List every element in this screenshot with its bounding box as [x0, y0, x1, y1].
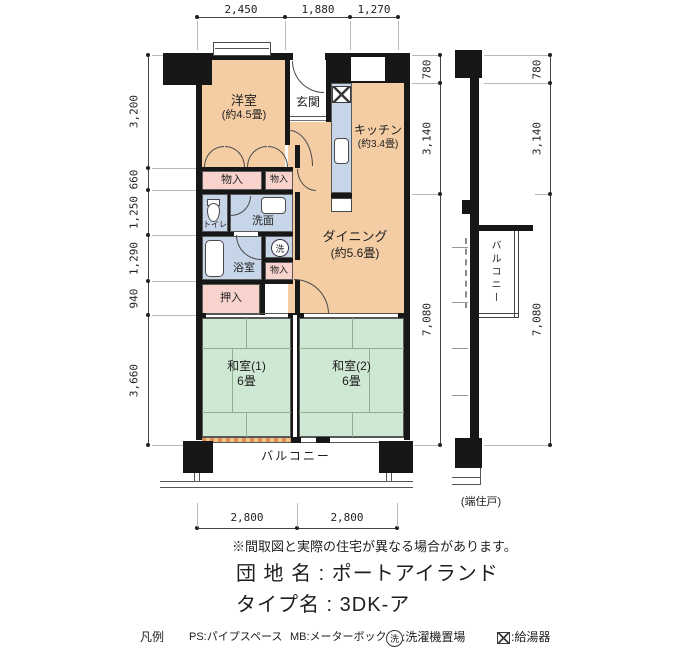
dim-left-5: 940 [128, 264, 141, 334]
dim-ext [398, 21, 399, 50]
dim-ext [484, 445, 548, 446]
wall-oshiire-right [260, 284, 265, 315]
dim-dot [438, 53, 442, 57]
genkan-step-line [290, 116, 326, 117]
sideview-balcony-ledge [479, 225, 533, 231]
floor-plan-canvas: 2,450 1,880 1,270 3,200 660 1,250 1,290 … [0, 0, 700, 650]
legend-heading: 凡例 [140, 631, 180, 644]
label-closet1: 物入 [202, 174, 262, 186]
fusuma-line [206, 317, 288, 318]
label-bath: 浴室 [224, 262, 264, 274]
sideview-bottom-line [452, 477, 480, 478]
legend-heater-label: :給湯器 [511, 631, 571, 644]
tatami-line [352, 318, 353, 348]
dim-right-outer-1: 780 [531, 35, 544, 105]
dim-dot [146, 53, 150, 57]
dim-dot [146, 188, 150, 192]
legend-wash-icon: 洗 [386, 630, 403, 647]
tatami-line [352, 412, 353, 437]
sideview-wall [470, 78, 479, 438]
estate-name-line: 団 地 名 : ポートアイランド [236, 563, 516, 585]
dim-top-3: 1,270 [344, 3, 404, 16]
sideview-slab-mark [452, 302, 468, 303]
dim-left-6: 3,660 [128, 346, 141, 416]
sideview-balcony-rail [514, 231, 519, 318]
dim-bottom-2: 2,800 [317, 511, 377, 524]
laundry-symbol: 洗 [275, 242, 284, 255]
balcony-outer-line [160, 481, 413, 482]
balcony-post [199, 473, 200, 481]
tatami-line [246, 412, 247, 437]
balcony-post [391, 473, 392, 481]
balcony-outer-line [160, 487, 413, 488]
dim-ext [152, 168, 196, 169]
disclaimer-note: ※間取図と実際の住宅が異なる場合があります。 [232, 540, 512, 554]
sideview-balcony-floor [479, 313, 519, 318]
legend-wash-symbol: 洗 [390, 632, 399, 645]
dim-dot [548, 81, 552, 85]
dim-ext [152, 190, 196, 191]
end-unit-note: (端住戸) [446, 496, 516, 508]
window-yoshitsu [213, 42, 271, 56]
fusuma-line [206, 313, 288, 314]
label-washitsu1: 和室(1) [202, 360, 291, 373]
balcony-post [194, 473, 195, 481]
label-balcony: バルコニー [246, 450, 346, 463]
dim-top-2: 1,880 [288, 3, 348, 16]
bathtub-icon [205, 240, 224, 277]
wall-right [404, 60, 410, 440]
dim-right-outer-2: 3,140 [531, 104, 544, 174]
label-washitsu2-size: 6畳 [299, 375, 404, 388]
dim-line-top [197, 17, 399, 18]
wall-tatami-divider [291, 315, 299, 437]
dim-dot [548, 53, 552, 57]
dim-ext [197, 503, 198, 527]
dim-right-inner-3: 7,080 [421, 285, 434, 355]
dim-dot [438, 192, 442, 196]
kitchen-counter-end [331, 198, 352, 212]
legend-heater-icon [497, 632, 510, 644]
wall-closet-top [202, 167, 293, 171]
closet-door-arc [268, 146, 288, 167]
dim-dot [146, 279, 150, 283]
water-heater-icon [332, 86, 351, 103]
label-oshiire: 押入 [204, 292, 258, 304]
label-dining-size: (約5.6畳) [315, 247, 395, 260]
dim-left-1: 3,200 [128, 77, 141, 147]
sideview-slab-mark [452, 395, 468, 396]
dim-right-outer-3: 7,080 [531, 285, 544, 355]
wall-bath-bottom [202, 280, 293, 284]
label-closet3: 物入 [265, 266, 293, 276]
dim-right-inner-1: 780 [421, 35, 434, 105]
wall-fusuma-left-end [196, 313, 206, 318]
sideview-top-block [455, 50, 482, 78]
sideview-bottom-line [452, 484, 480, 485]
bottom-wall-chunk [316, 437, 330, 443]
sideview-partition-dashed [465, 238, 467, 308]
label-closet2: 物入 [265, 175, 293, 185]
balcony-block-left [183, 441, 213, 473]
sideview-slab-mark [452, 247, 468, 248]
meter-box [351, 57, 385, 81]
dim-dot [146, 166, 150, 170]
label-genkan: 玄関 [286, 96, 330, 109]
sideview-bottom-block [455, 438, 482, 468]
dim-bottom-1: 2,800 [217, 511, 277, 524]
dim-ext [297, 503, 298, 527]
fusuma-line [304, 317, 398, 318]
dim-dot [195, 15, 199, 19]
washitsu1-window-sill [202, 437, 291, 443]
dim-ext [152, 281, 196, 282]
dim-ext [152, 445, 183, 446]
window-yoshitsu-line [215, 48, 269, 49]
wall-fusuma-right-end [398, 313, 406, 318]
sideview-balcony-label: バルコニー [489, 240, 500, 305]
dim-line-right-outer [550, 55, 551, 445]
tatami-line [299, 348, 404, 349]
laundry-circle: 洗 [271, 239, 289, 257]
wall-closet-bottom [202, 190, 293, 194]
dim-dot [146, 313, 150, 317]
label-washitsu1-size: 6畳 [202, 375, 291, 388]
sideview-bottom-line [480, 468, 481, 485]
dim-ext [152, 235, 196, 236]
dim-ext [197, 21, 198, 50]
bottom-wall-chunk [291, 437, 301, 443]
dim-right-inner-2: 3,140 [421, 104, 434, 174]
dim-dot [438, 81, 442, 85]
dim-line-left [148, 55, 149, 445]
sideview-slab-mark [452, 348, 468, 349]
dim-ext [412, 194, 438, 195]
type-name-line: タイプ名 : 3DK-ア [236, 594, 516, 616]
wall-hall-left-mid [295, 192, 300, 260]
washbasin-icon [261, 197, 286, 214]
tatami-line [246, 318, 247, 348]
label-toilet: トイレ [201, 221, 229, 230]
dim-ext [350, 21, 351, 50]
dim-line-right-inner [440, 55, 441, 445]
dim-ext [414, 445, 438, 446]
label-washitsu2: 和室(2) [299, 360, 404, 373]
dim-ext [397, 503, 398, 527]
sideview-step [462, 200, 470, 214]
dim-ext [285, 21, 286, 50]
label-yoshitsu-size: (約4.5畳) [204, 109, 284, 121]
dim-ext [535, 194, 548, 195]
label-dining: ダイニング [315, 230, 395, 244]
dim-dot [146, 233, 150, 237]
tatami-line [202, 348, 291, 349]
label-kitchen-size: (約3.4畳) [343, 139, 413, 150]
dim-dot [438, 443, 442, 447]
genkan-door-opening [293, 53, 325, 60]
dim-dot [548, 192, 552, 196]
dim-ext [152, 315, 196, 316]
legend-wash-label: :洗濯機置場 [402, 631, 492, 644]
label-kitchen: キッチン [343, 124, 413, 137]
balcony-post [386, 473, 387, 481]
wall-laundry-bottom [265, 258, 293, 262]
label-washroom: 洗面 [238, 215, 288, 227]
label-yoshitsu: 洋室 [204, 94, 284, 108]
dim-dot [283, 15, 287, 19]
dim-dot [146, 443, 150, 447]
balcony-block-right [379, 441, 413, 473]
dim-dot [548, 443, 552, 447]
dim-top-1: 2,450 [211, 3, 271, 16]
